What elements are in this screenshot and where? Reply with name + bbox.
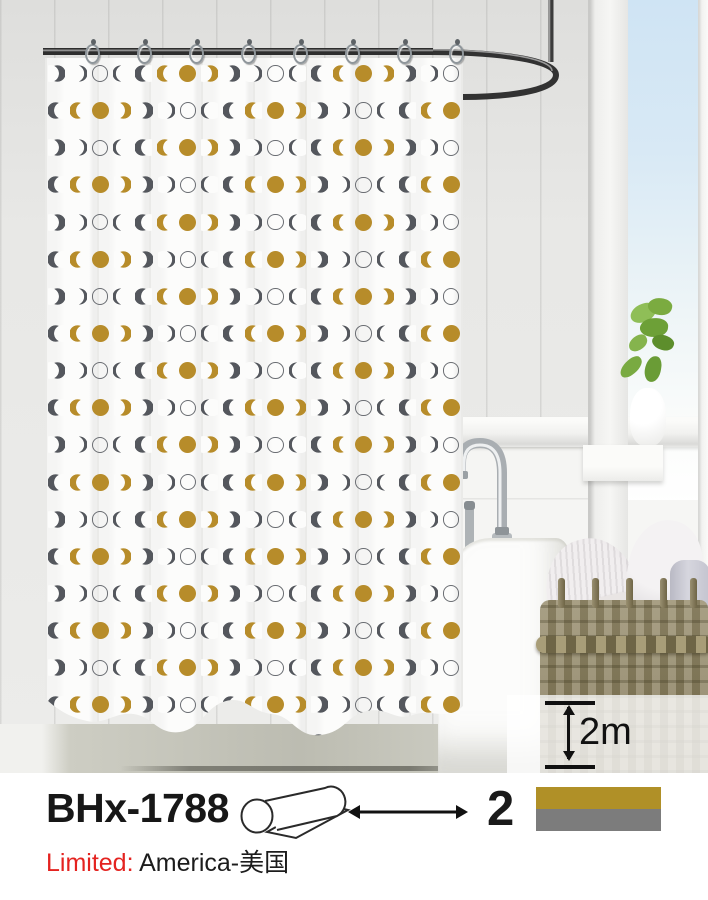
product-image: 2m BHx-1788 2 Limited: America-美国 <box>0 0 708 900</box>
bathroom-photo: 2m <box>0 0 708 773</box>
curtain-hook <box>345 44 360 64</box>
product-info-bar: BHx-1788 2 Limited: America-美国 <box>0 773 708 900</box>
color-swatches <box>536 787 661 831</box>
color-count: 2 <box>487 781 514 837</box>
rolled-curtain-icon <box>233 779 355 845</box>
model-number: BHx-1788 <box>46 785 229 832</box>
curtain-hook <box>85 44 100 64</box>
limited-label: Limited: <box>46 849 134 877</box>
height-label: 2m <box>579 711 632 754</box>
measure-bottom-bar <box>545 765 595 769</box>
curtain-hook <box>293 44 308 64</box>
curtain-hook <box>449 44 464 64</box>
limited-value: America-美国 <box>139 849 289 877</box>
shower-rail <box>0 0 708 773</box>
double-arrow-icon <box>348 803 468 821</box>
arrow-up-icon <box>563 705 575 715</box>
height-annotation: 2m <box>507 695 708 773</box>
curtain-hook <box>397 44 412 64</box>
swatch-gold <box>536 787 661 809</box>
limited-line: Limited: America-美国 <box>46 843 289 879</box>
swatch-gray <box>536 809 661 831</box>
curtain-hook <box>137 44 152 64</box>
curtain-hook <box>241 44 256 64</box>
curtain-hook <box>189 44 204 64</box>
arrow-down-icon <box>563 751 575 761</box>
